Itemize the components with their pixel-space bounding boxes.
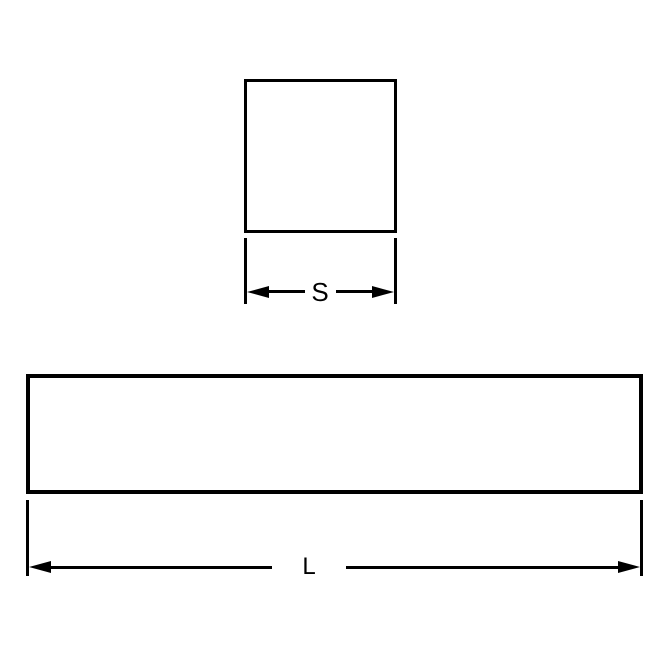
length-bar-outline bbox=[26, 374, 643, 494]
s-arrowhead-right-icon bbox=[372, 286, 394, 298]
l-extension-line-right bbox=[640, 500, 643, 576]
l-dimension-line-right bbox=[346, 566, 622, 569]
s-extension-line-right bbox=[394, 238, 397, 304]
s-dimension-line-left bbox=[263, 290, 305, 293]
l-dimension-line-left bbox=[46, 566, 272, 569]
l-arrowhead-right-icon bbox=[618, 561, 640, 573]
square-cross-section-outline bbox=[244, 79, 397, 233]
length-dimension-label: L bbox=[302, 555, 315, 579]
side-dimension-label: S bbox=[311, 279, 328, 305]
diagram-canvas: S L bbox=[0, 0, 670, 670]
